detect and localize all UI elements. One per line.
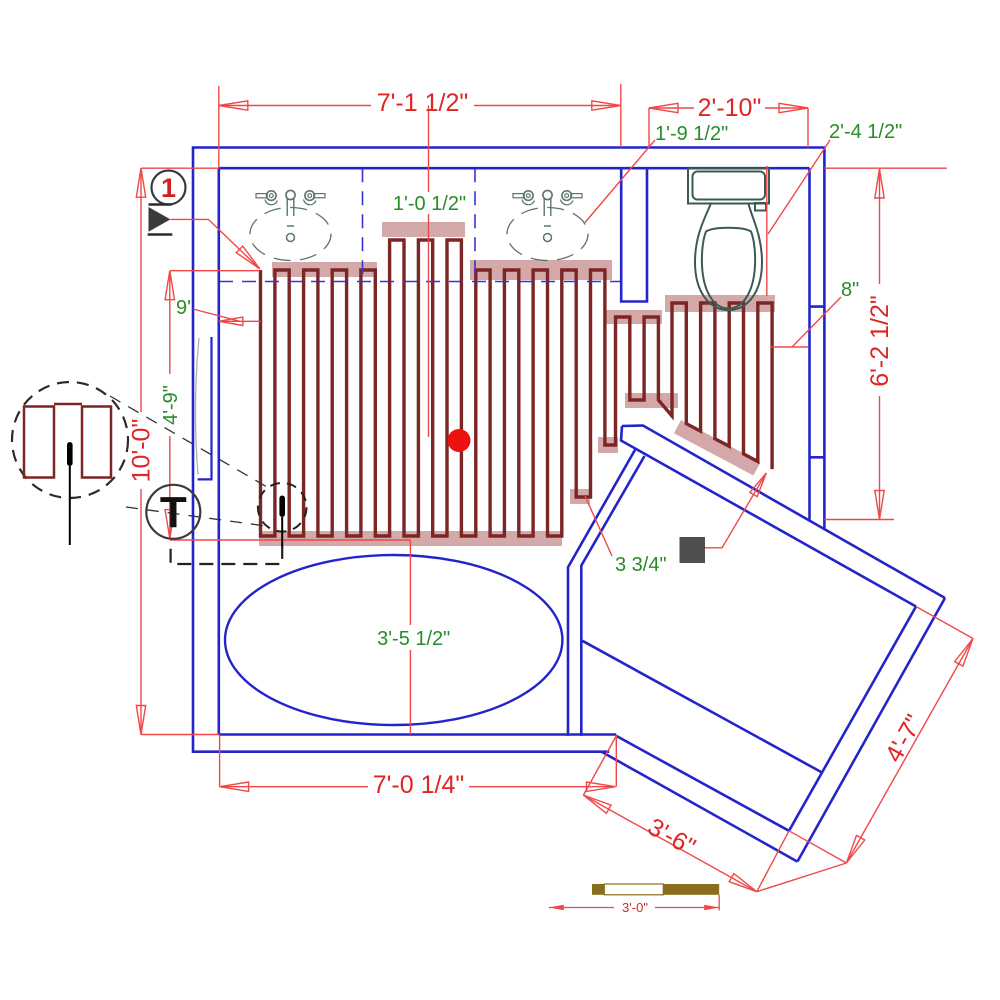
svg-text:3 3/4": 3 3/4": [615, 554, 667, 576]
svg-text:3'-0": 3'-0": [622, 900, 648, 915]
svg-text:1: 1: [161, 173, 176, 203]
svg-text:9': 9': [176, 297, 191, 319]
svg-text:1'-0 1/2": 1'-0 1/2": [393, 193, 466, 215]
svg-text:2'-10": 2'-10": [698, 94, 762, 122]
svg-text:7'-1 1/2": 7'-1 1/2": [377, 89, 468, 117]
svg-text:8": 8": [841, 279, 859, 301]
svg-text:7'-0 1/4": 7'-0 1/4": [373, 771, 464, 799]
svg-text:1'-9 1/2": 1'-9 1/2": [655, 123, 728, 145]
svg-text:T: T: [160, 488, 187, 537]
svg-text:10'-0": 10'-0": [128, 419, 156, 483]
svg-text:2'-4 1/2": 2'-4 1/2": [829, 121, 902, 143]
svg-text:3'-5 1/2": 3'-5 1/2": [377, 628, 450, 650]
svg-text:6'-2 1/2": 6'-2 1/2": [866, 295, 894, 386]
svg-text:4'-9": 4'-9": [160, 385, 182, 425]
